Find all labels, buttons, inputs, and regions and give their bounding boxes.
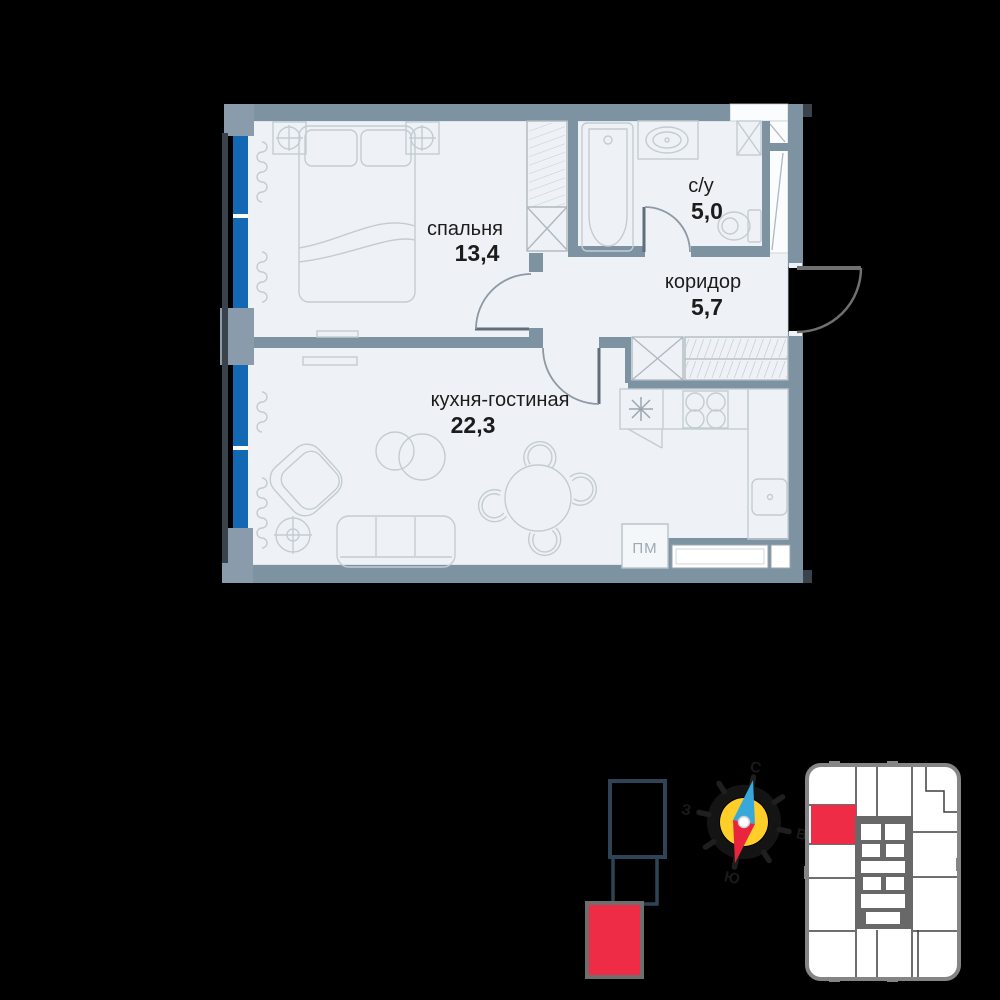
floor-plan: ПМ — [220, 104, 861, 583]
wall-top — [253, 104, 730, 121]
wall-right-upper — [788, 104, 803, 267]
wall-bedroom-living — [250, 337, 543, 348]
dishwasher-label: ПМ — [632, 540, 657, 557]
bedroom-label: спальня — [427, 218, 503, 240]
wall-bottom — [250, 565, 662, 583]
mullion — [233, 214, 248, 218]
building-section — [610, 781, 665, 857]
wall-step — [625, 341, 631, 383]
corridor-area: 5,7 — [691, 294, 723, 320]
wall-bath-bottom-right — [691, 246, 770, 257]
pylon-top-left — [224, 104, 254, 136]
wall-bedroom-bath — [568, 121, 578, 253]
apartment-plan-canvas: ПМ — [0, 0, 1000, 1000]
corridor-label: коридор — [665, 271, 741, 293]
shelf-rack — [685, 337, 788, 380]
vent-star-icon — [629, 397, 653, 421]
shaft-bar — [768, 143, 788, 151]
outer-frame — [222, 133, 228, 563]
window — [672, 545, 768, 568]
wall-bath-right — [762, 121, 770, 257]
bedroom-area: 13,4 — [455, 240, 500, 266]
cap-bottom-right — [803, 570, 812, 583]
mullion — [233, 446, 248, 450]
minimap-core — [855, 816, 913, 929]
compass-south-label: Ю — [723, 868, 742, 888]
building-stack-icon — [587, 781, 665, 977]
dishwasher-box: ПМ — [622, 524, 668, 568]
bottom-windows — [672, 545, 790, 568]
compass-north-label: С — [748, 758, 762, 777]
compass-west-label: З — [680, 801, 693, 820]
compass-icon: С Ю В З — [668, 746, 821, 900]
entrance-door — [797, 268, 861, 332]
building-section-highlighted — [587, 903, 642, 977]
kitchen-living-label: кухня-гостиная — [431, 389, 570, 411]
wall-kitchen-band — [628, 380, 788, 389]
building-section — [613, 857, 657, 904]
vent-shaft — [768, 121, 788, 253]
selected-unit — [811, 805, 856, 844]
bathroom-label: с/у — [688, 175, 714, 197]
window — [771, 545, 790, 568]
kitchen-living-area: 22,3 — [451, 412, 496, 438]
floor-plate-minimap — [804, 761, 961, 982]
glazing-strip-upper — [233, 136, 248, 308]
cap-top-right — [803, 104, 812, 117]
bathroom-area: 5,0 — [691, 198, 723, 224]
wall-corridor-stub-upper — [529, 253, 543, 272]
floor-plan-drawing: ПМ — [0, 0, 1000, 1000]
compass-pivot — [739, 817, 750, 828]
top-niche — [730, 104, 788, 121]
